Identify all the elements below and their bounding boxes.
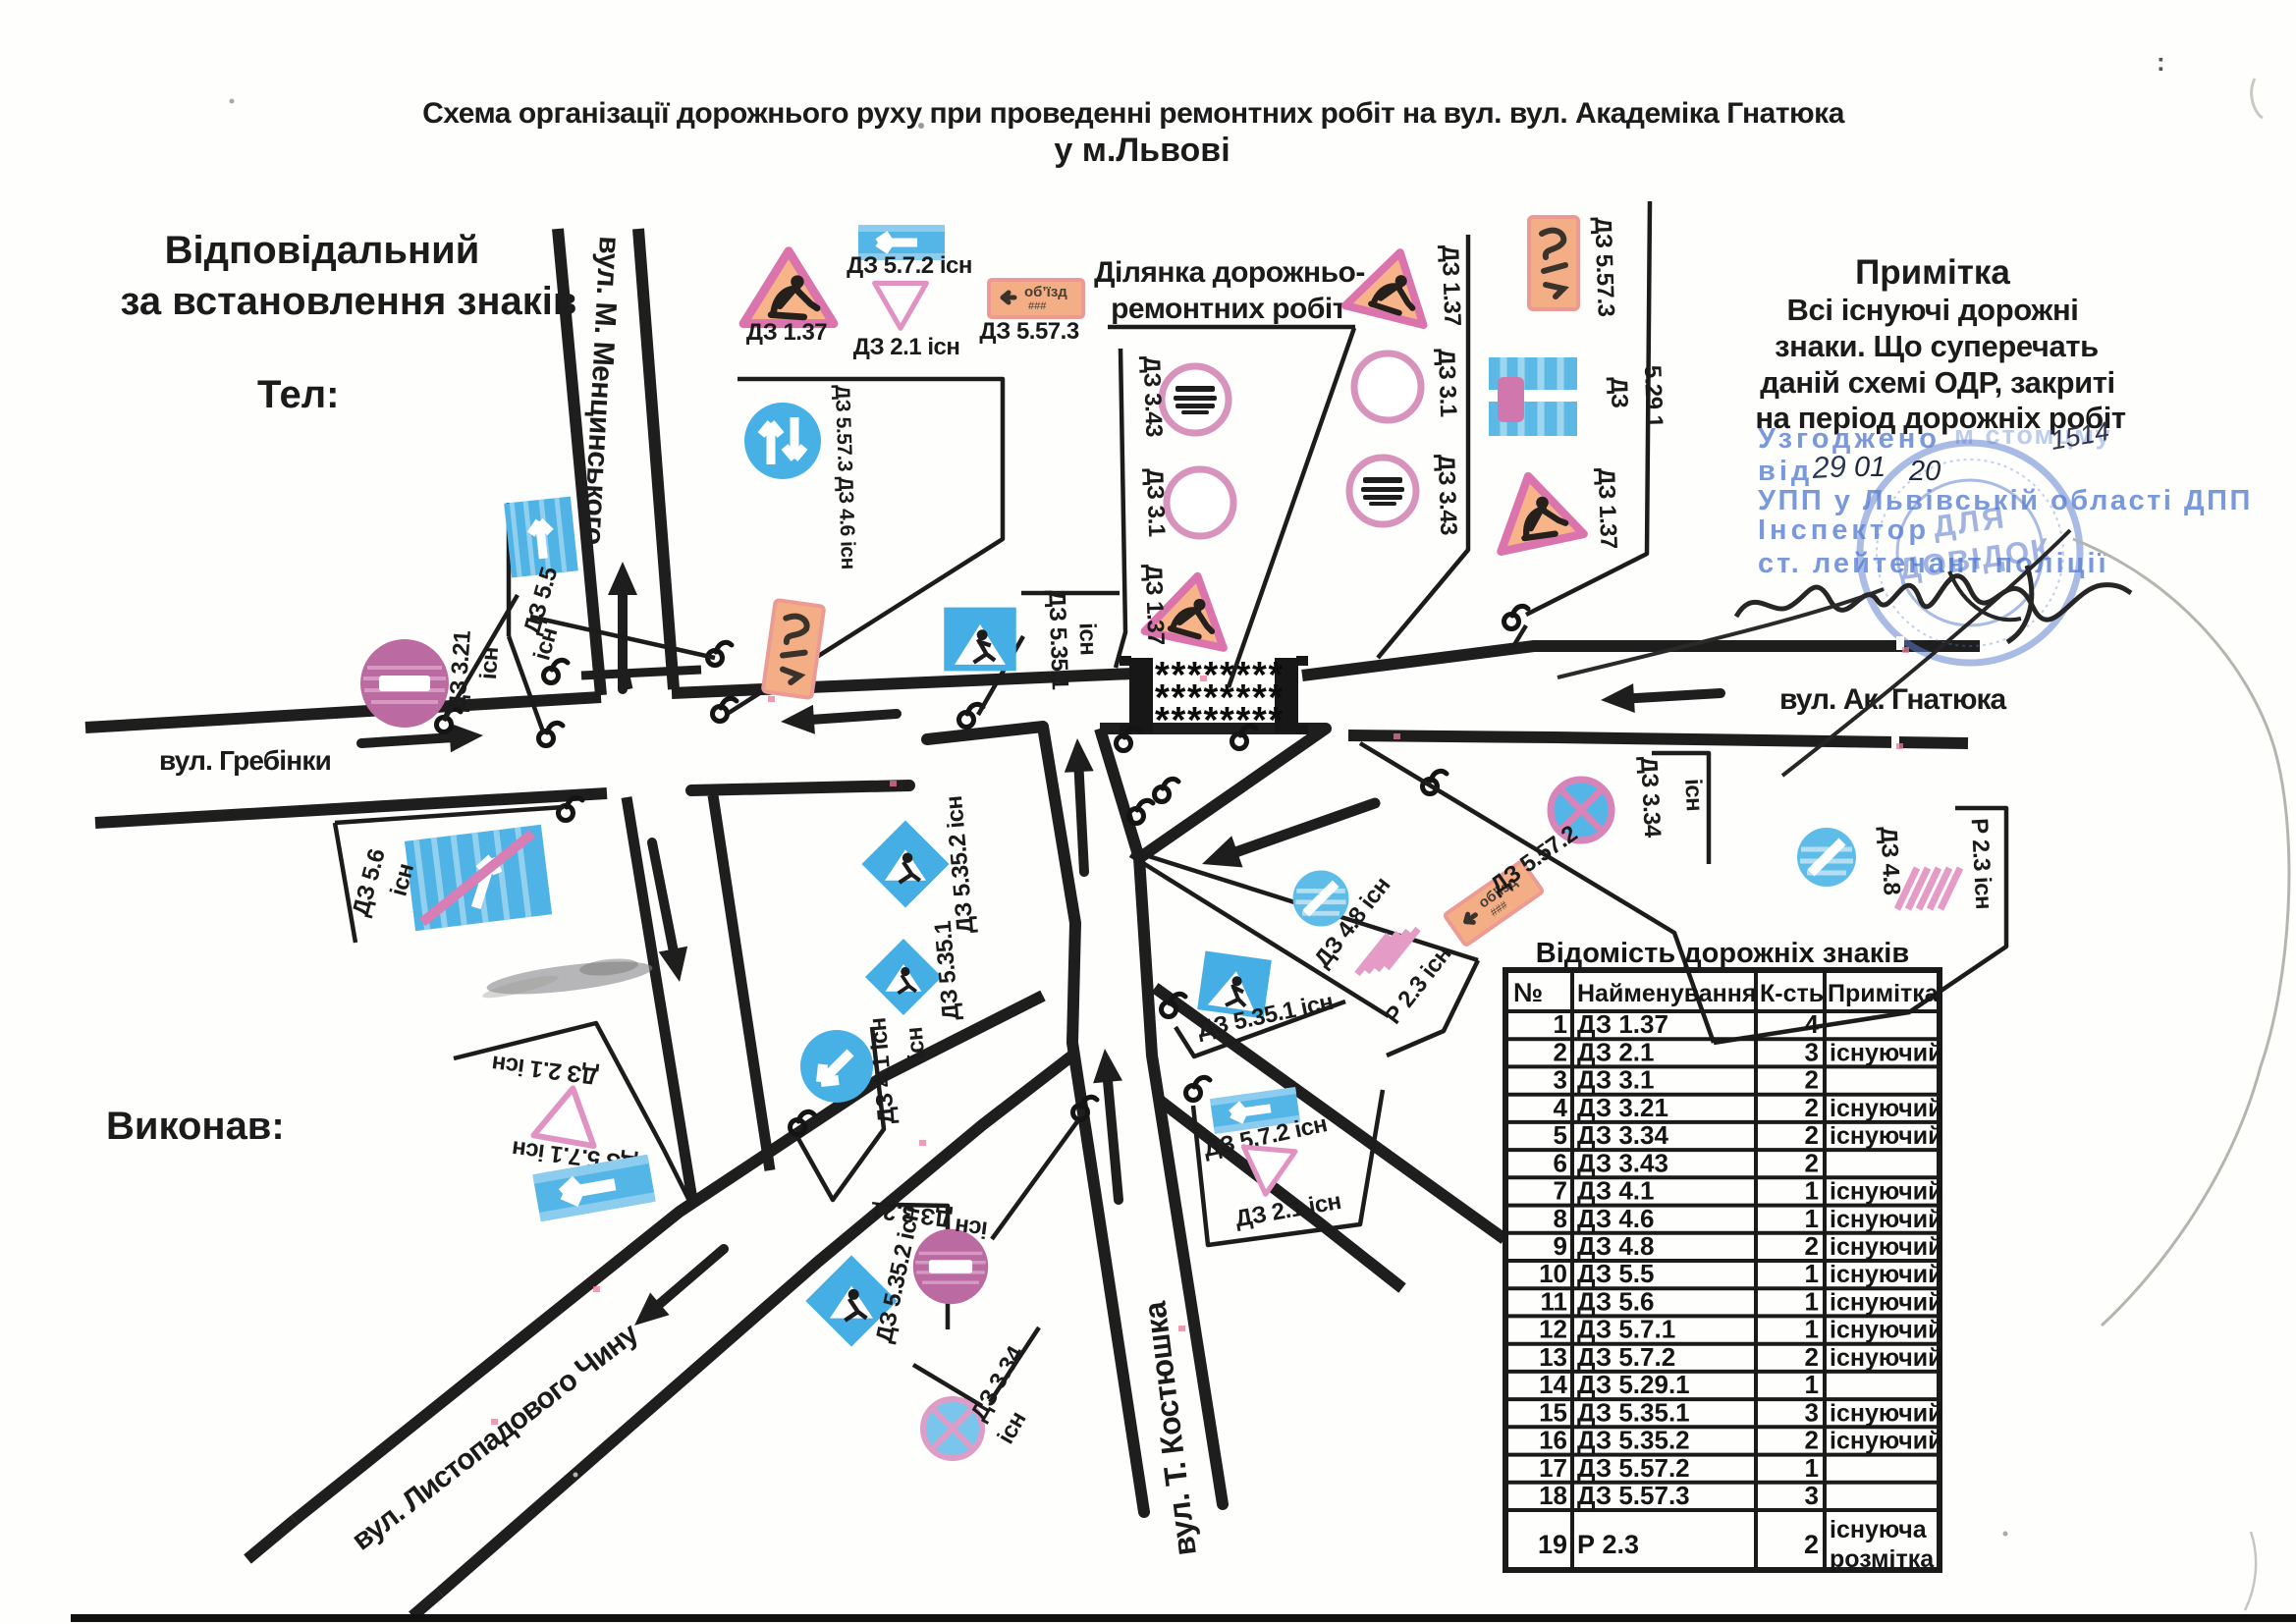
svg-text:існуючий: існуючий: [1830, 1428, 1943, 1455]
svg-text:ДЗ 5.57.3: ДЗ 5.57.3: [979, 318, 1078, 345]
svg-text:Р 2.3 існ: Р 2.3 існ: [1966, 818, 1997, 910]
svg-text:ДЗ 3.34: ДЗ 3.34: [1635, 756, 1666, 839]
svg-text:2: 2: [1805, 1231, 1819, 1261]
svg-text:*: *: [1252, 700, 1267, 741]
svg-text:ДЗ 5.35.2: ДЗ 5.35.2: [1577, 1426, 1690, 1455]
svg-text:ДЗ 2.1 існ: ДЗ 2.1 існ: [853, 334, 960, 360]
svg-text:Відомість дорожніх знаків: Відомість дорожніх знаків: [1536, 938, 1909, 969]
svg-text:ДЗ 4.8: ДЗ 4.8: [1875, 826, 1905, 895]
svg-text:ДЗ 1.37: ДЗ 1.37: [1140, 564, 1170, 645]
svg-text:1: 1: [1554, 1009, 1567, 1039]
svg-text:18: 18: [1539, 1481, 1567, 1510]
svg-text:Всі існуючі дорожні: Всі існуючі дорожні: [1787, 293, 2079, 327]
svg-text:ДЗ 4.1: ДЗ 4.1: [1577, 1176, 1655, 1206]
svg-text:існуючий: існуючий: [1830, 1317, 1943, 1344]
svg-text:2: 2: [1805, 1065, 1819, 1095]
svg-text:ДЗ 3.21: ДЗ 3.21: [869, 1196, 953, 1232]
svg-text:ДЗ 5.7.1: ДЗ 5.7.1: [1577, 1315, 1675, 1344]
svg-text:ДЗ 3.43: ДЗ 3.43: [1433, 454, 1462, 535]
svg-text:Р 2.3: Р 2.3: [1577, 1530, 1639, 1559]
svg-text:ДЗ 1.37: ДЗ 1.37: [1577, 1009, 1668, 1039]
svg-text:існ: існ: [902, 1026, 931, 1060]
svg-text:ДЗ 1.37: ДЗ 1.37: [1593, 467, 1622, 549]
svg-text:існ: існ: [1679, 778, 1708, 811]
svg-text:ДЗ 3.43: ДЗ 3.43: [1577, 1148, 1668, 1177]
svg-text:існуючий: існуючий: [1830, 1039, 1943, 1066]
svg-text:*: *: [1155, 700, 1170, 741]
svg-text:ДЗ 5.6: ДЗ 5.6: [1577, 1286, 1655, 1316]
svg-text:01: 01: [1854, 452, 1886, 483]
svg-text:існ: існ: [1073, 623, 1101, 656]
svg-text:ДЗ 3.1: ДЗ 3.1: [1577, 1065, 1655, 1095]
svg-text:3: 3: [1805, 1397, 1819, 1427]
svg-text:ДЗ 3.34: ДЗ 3.34: [1577, 1120, 1668, 1150]
svg-text:2: 2: [1804, 1530, 1819, 1559]
svg-text:4: 4: [1805, 1009, 1820, 1039]
svg-text:12: 12: [1539, 1315, 1567, 1344]
svg-text:Тел:: Тел:: [257, 373, 339, 416]
svg-text:16: 16: [1539, 1426, 1567, 1455]
svg-text:1: 1: [1805, 1370, 1819, 1399]
svg-text:2: 2: [1805, 1120, 1819, 1150]
svg-text:№: №: [1513, 978, 1543, 1007]
svg-text:ДЗ 2.1: ДЗ 2.1: [1577, 1037, 1655, 1066]
svg-text:ДЗ 2.1 існ: ДЗ 2.1 існ: [491, 1050, 600, 1089]
svg-text:13: 13: [1539, 1342, 1567, 1372]
svg-text:ДЗ 5.29.1: ДЗ 5.29.1: [1577, 1370, 1690, 1399]
svg-text:6: 6: [1554, 1148, 1567, 1177]
svg-text:*: *: [1172, 700, 1186, 741]
svg-text:Примітка: Примітка: [1855, 253, 2010, 292]
svg-text:11: 11: [1541, 1286, 1568, 1316]
svg-text:існ: існ: [475, 646, 504, 680]
svg-text:існуючий: існуючий: [1830, 1288, 1943, 1316]
svg-text:1: 1: [1805, 1453, 1819, 1483]
svg-text:ДЗ 5.7.2 існ: ДЗ 5.7.2 існ: [847, 252, 972, 279]
svg-text:даній схемі ОДР, закриті: даній схемі ОДР, закриті: [1760, 365, 2115, 400]
svg-text:7: 7: [1554, 1176, 1567, 1206]
svg-text:К-сть: К-сть: [1760, 980, 1824, 1007]
svg-text::: :: [2157, 47, 2165, 77]
svg-text:*: *: [1187, 700, 1202, 741]
svg-text:2: 2: [1805, 1426, 1819, 1455]
svg-text:ДЗ 5.57.3: ДЗ 5.57.3: [1589, 217, 1619, 317]
svg-text:5.29.1: 5.29.1: [1639, 364, 1667, 428]
svg-text:3: 3: [1805, 1481, 1819, 1510]
svg-text:17: 17: [1539, 1453, 1567, 1483]
svg-text:існ: існ: [954, 1213, 989, 1243]
svg-text:9: 9: [1554, 1231, 1567, 1261]
svg-text:ДЗ 5.6: ДЗ 5.6: [348, 846, 391, 919]
svg-text:існ: існ: [993, 1407, 1032, 1448]
svg-text:ДЗ 3.21: ДЗ 3.21: [1577, 1093, 1668, 1122]
svg-text:Відповідальний: Відповідальний: [165, 229, 480, 272]
svg-text:існуючий: існуючий: [1830, 1206, 1943, 1233]
svg-text:ДЗ 3.21: ДЗ 3.21: [444, 629, 476, 712]
svg-text:2: 2: [1554, 1037, 1567, 1066]
svg-text:існуючий: існуючий: [1830, 1122, 1943, 1150]
svg-text:ДЗ 3.34: ДЗ 3.34: [965, 1341, 1029, 1426]
svg-text:ДЗ 5.7.2: ДЗ 5.7.2: [1577, 1342, 1675, 1372]
svg-text:за встановлення знаків: за встановлення знаків: [121, 280, 577, 323]
svg-text:ДЗ 3.43: ДЗ 3.43: [1138, 355, 1168, 437]
svg-text:ДЗ 5.57.2: ДЗ 5.57.2: [1577, 1453, 1690, 1483]
svg-text:ДЗ 4.8: ДЗ 4.8: [1577, 1231, 1655, 1261]
svg-text:ДЗ 5.35.1: ДЗ 5.35.1: [930, 920, 965, 1021]
svg-text:знаки. Що суперечать: знаки. Що суперечать: [1775, 329, 2099, 363]
svg-text:розмітка: розмітка: [1830, 1545, 1935, 1573]
svg-text:*: *: [1204, 700, 1219, 741]
svg-text:5: 5: [1554, 1120, 1567, 1150]
svg-text:Узгоджено: Узгоджено: [1758, 423, 1941, 455]
svg-text:2: 2: [1805, 1342, 1819, 1372]
svg-text:Схема організації дорожнього р: Схема організації дорожнього руху при пр…: [422, 97, 1845, 130]
svg-text:ДЗ 5.57.3: ДЗ 5.57.3: [1577, 1481, 1690, 1510]
svg-text:існуюча: існуюча: [1830, 1516, 1928, 1543]
svg-text:існуючий: існуючий: [1830, 1344, 1943, 1372]
svg-text:3: 3: [1554, 1065, 1567, 1095]
svg-text:від: від: [1758, 456, 1813, 487]
svg-text:ДЗ 5.57.3 ДЗ 4.6 існ: ДЗ 5.57.3 ДЗ 4.6 існ: [831, 384, 860, 569]
svg-text:Ділянка дорожньо-: Ділянка дорожньо-: [1094, 256, 1365, 289]
svg-text:8: 8: [1554, 1204, 1567, 1233]
svg-text:19: 19: [1538, 1530, 1567, 1559]
svg-text:ДЗ 5.5: ДЗ 5.5: [1577, 1259, 1655, 1288]
svg-text:вул. Гребінки: вул. Гребінки: [159, 745, 331, 776]
svg-text:існуючий: існуючий: [1830, 1261, 1943, 1288]
svg-text:існуючий: існуючий: [1830, 1095, 1943, 1122]
svg-text:ремонтних робіт: ремонтних робіт: [1111, 293, 1346, 325]
svg-text:існуючий: існуючий: [1830, 1178, 1943, 1206]
svg-text:1: 1: [1805, 1176, 1819, 1206]
svg-text:ДЗ: ДЗ: [1605, 377, 1632, 408]
svg-text:ДЗ 4.1 існ: ДЗ 4.1 існ: [864, 1016, 900, 1125]
svg-text:*: *: [1269, 700, 1284, 741]
svg-text:ДЗ 3.1: ДЗ 3.1: [1141, 468, 1170, 538]
svg-text:у м.Львові: у м.Львові: [1054, 132, 1230, 169]
svg-text:1: 1: [1805, 1259, 1819, 1288]
svg-text:4: 4: [1554, 1093, 1568, 1122]
svg-text:10: 10: [1539, 1259, 1567, 1288]
svg-text:2: 2: [1805, 1148, 1819, 1177]
svg-text:ДЗ 5.35.1: ДЗ 5.35.1: [1577, 1397, 1690, 1427]
svg-text:Виконав:: Виконав:: [106, 1105, 285, 1148]
svg-text:1: 1: [1805, 1204, 1819, 1233]
svg-text:Примітка: Примітка: [1828, 980, 1940, 1007]
svg-text:3: 3: [1805, 1037, 1819, 1066]
svg-text:1: 1: [1805, 1286, 1819, 1316]
svg-text:існуючий: існуючий: [1830, 1233, 1943, 1261]
svg-text:ДЗ 3.1: ДЗ 3.1: [1433, 349, 1461, 418]
svg-text:14: 14: [1539, 1370, 1567, 1399]
svg-text:ДЗ 1.37: ДЗ 1.37: [746, 319, 827, 346]
svg-text:Найменування: Найменування: [1577, 980, 1756, 1007]
svg-text:ДЗ 5.35.2 існ: ДЗ 5.35.2 існ: [941, 794, 979, 934]
svg-text:ДЗ 5.35.1: ДЗ 5.35.1: [1043, 590, 1073, 690]
svg-text:існуючий: існуючий: [1830, 1399, 1943, 1427]
svg-text:29: 29: [1811, 449, 1847, 485]
svg-text:2: 2: [1805, 1093, 1819, 1122]
svg-text:ДЗ 1.37: ДЗ 1.37: [1437, 244, 1466, 326]
svg-text:15: 15: [1539, 1397, 1567, 1427]
svg-text:ДЗ 4.6: ДЗ 4.6: [1577, 1204, 1655, 1233]
svg-text:1: 1: [1805, 1315, 1819, 1344]
